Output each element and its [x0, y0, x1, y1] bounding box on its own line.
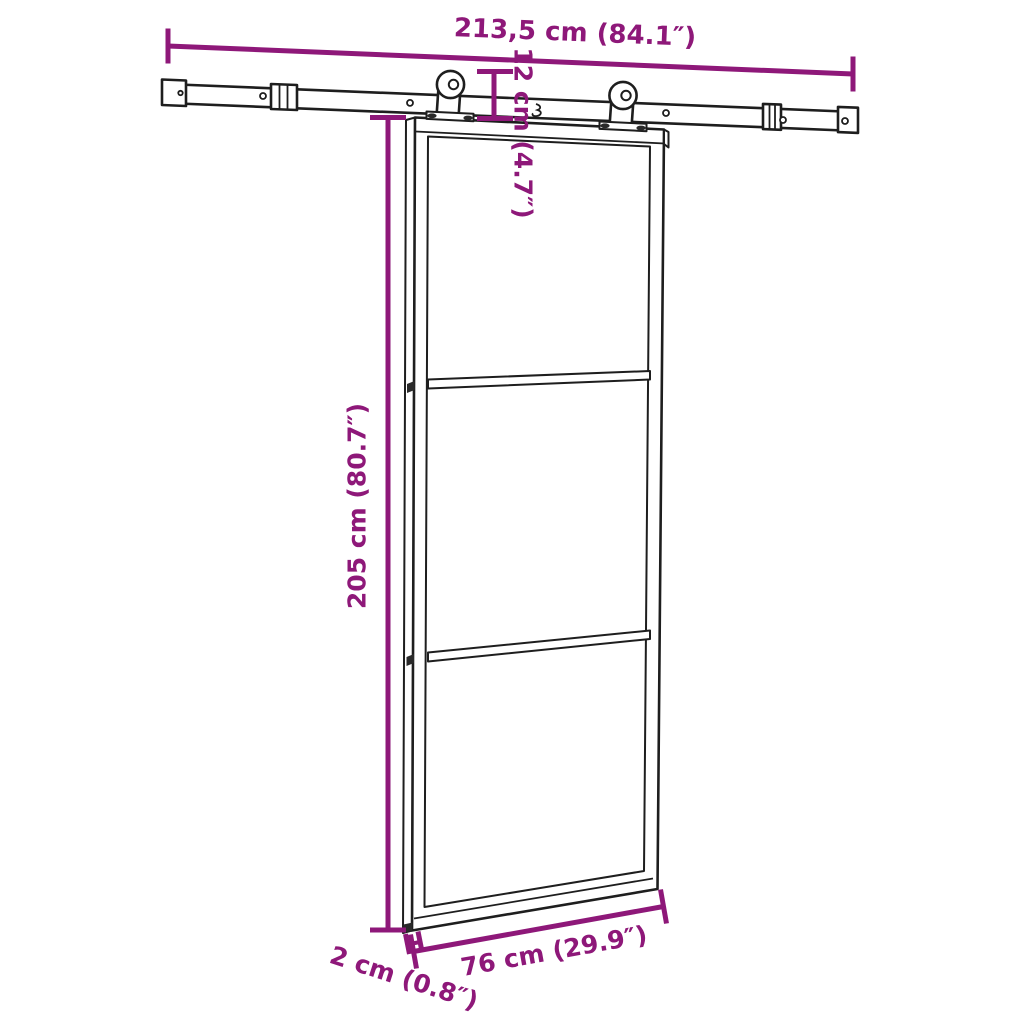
rail-coupler-left — [271, 84, 297, 110]
roller-right-bolt — [636, 126, 645, 131]
roller-right-bolt — [600, 123, 609, 128]
screw-hole — [780, 117, 786, 123]
hanger-drop-label: 12 cm (4.7″) — [511, 47, 536, 218]
door-glass-panel — [425, 137, 651, 908]
dim-door-width-tick-right — [661, 890, 667, 924]
dim-door-thickness-line — [408, 942, 421, 945]
roller-left-bolt — [463, 116, 472, 121]
door — [403, 118, 669, 934]
rail-end-cap-left-screw — [178, 91, 182, 95]
screw-hole — [663, 110, 669, 116]
dim-door-height — [370, 118, 406, 931]
roller-left-bolt — [427, 113, 436, 118]
screw-hole — [260, 93, 266, 99]
roller-left-hub — [449, 80, 458, 89]
rail-coupler-right — [763, 104, 781, 130]
door-header-end-face — [664, 130, 669, 148]
screw-hole — [407, 100, 413, 106]
dimension-diagram: 213,5 cm (84.1″) 12 cm (4.7″) 205 cm (80… — [0, 0, 1024, 1024]
door-height-label: 205 cm (80.7″) — [345, 403, 370, 609]
screw-hole — [842, 118, 848, 124]
roller-right-hub — [621, 91, 630, 100]
